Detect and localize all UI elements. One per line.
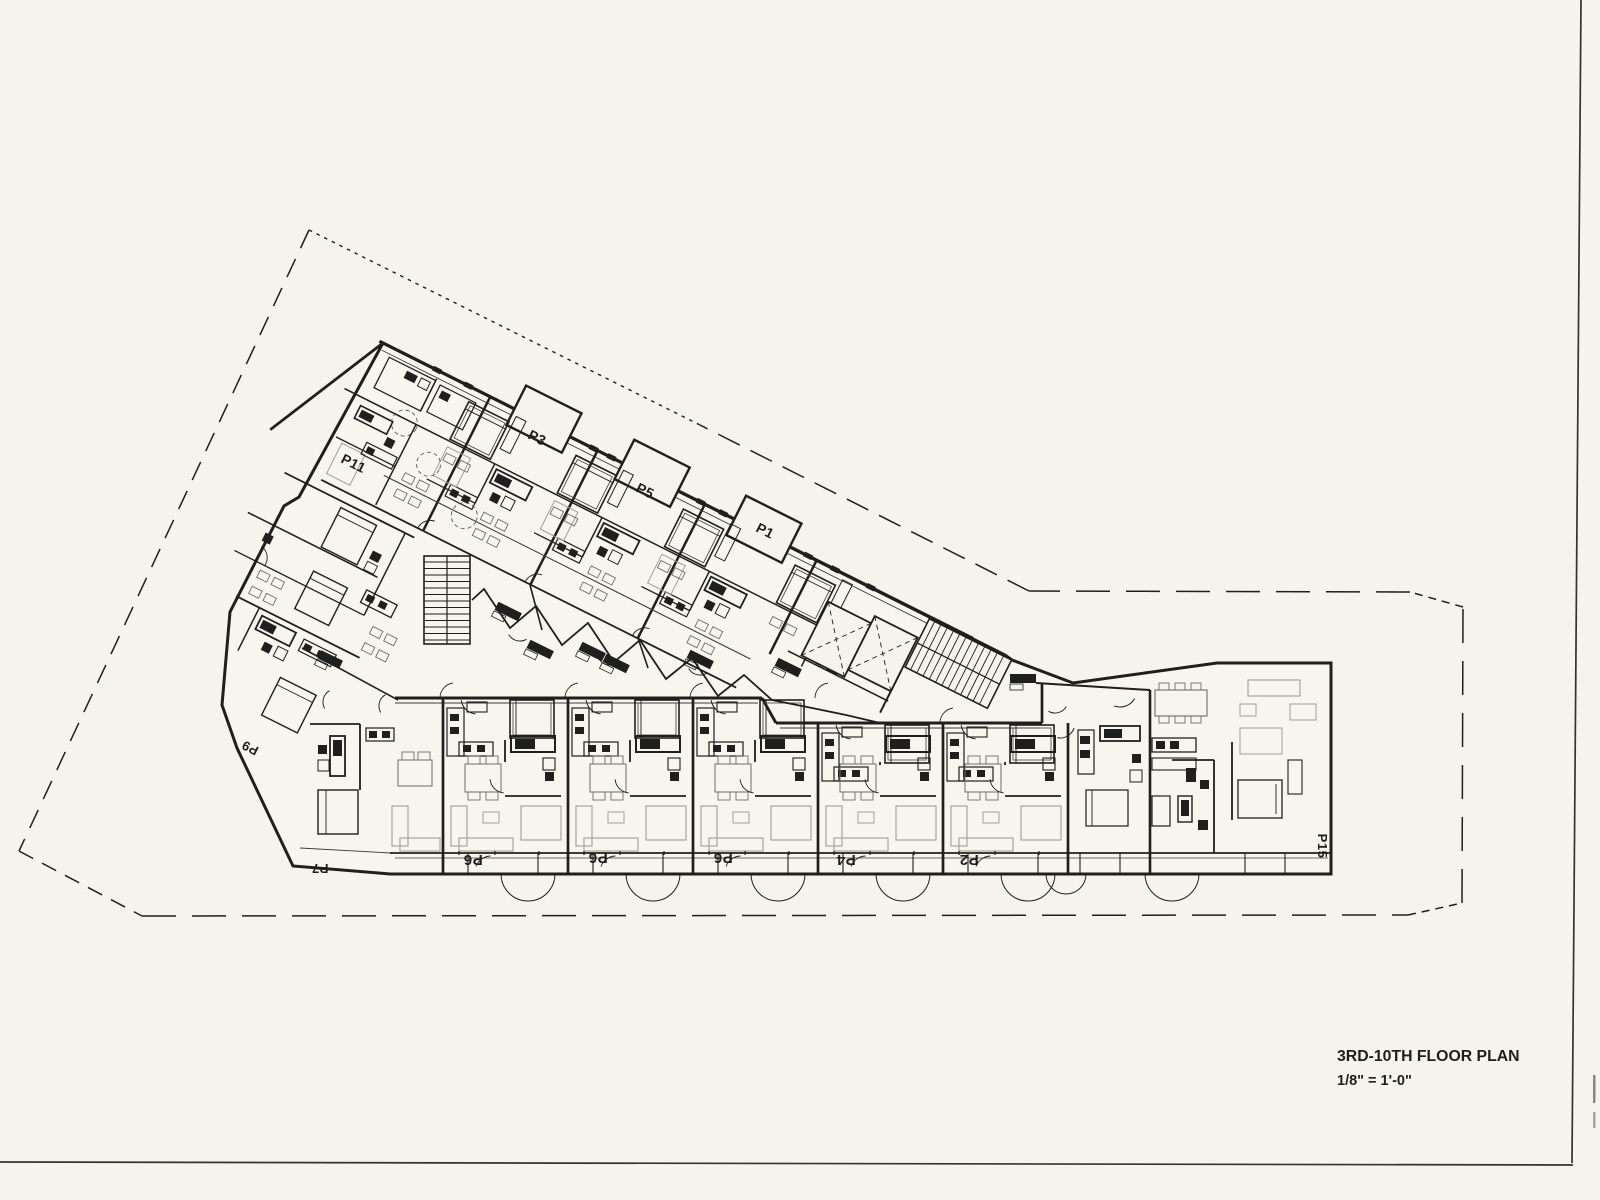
svg-text:P6: P6 [713,849,732,866]
svg-text:P7: P7 [312,861,329,876]
svg-text:1/8" = 1'-0": 1/8" = 1'-0" [1337,1073,1412,1089]
svg-text:P2: P2 [959,851,978,868]
svg-text:P4: P4 [836,851,856,868]
svg-text:P15: P15 [1315,834,1330,859]
svg-text:P6: P6 [463,851,482,868]
svg-text:P6: P6 [588,849,607,866]
svg-text:3RD-10TH FLOOR PLAN: 3RD-10TH FLOOR PLAN [1337,1048,1520,1065]
